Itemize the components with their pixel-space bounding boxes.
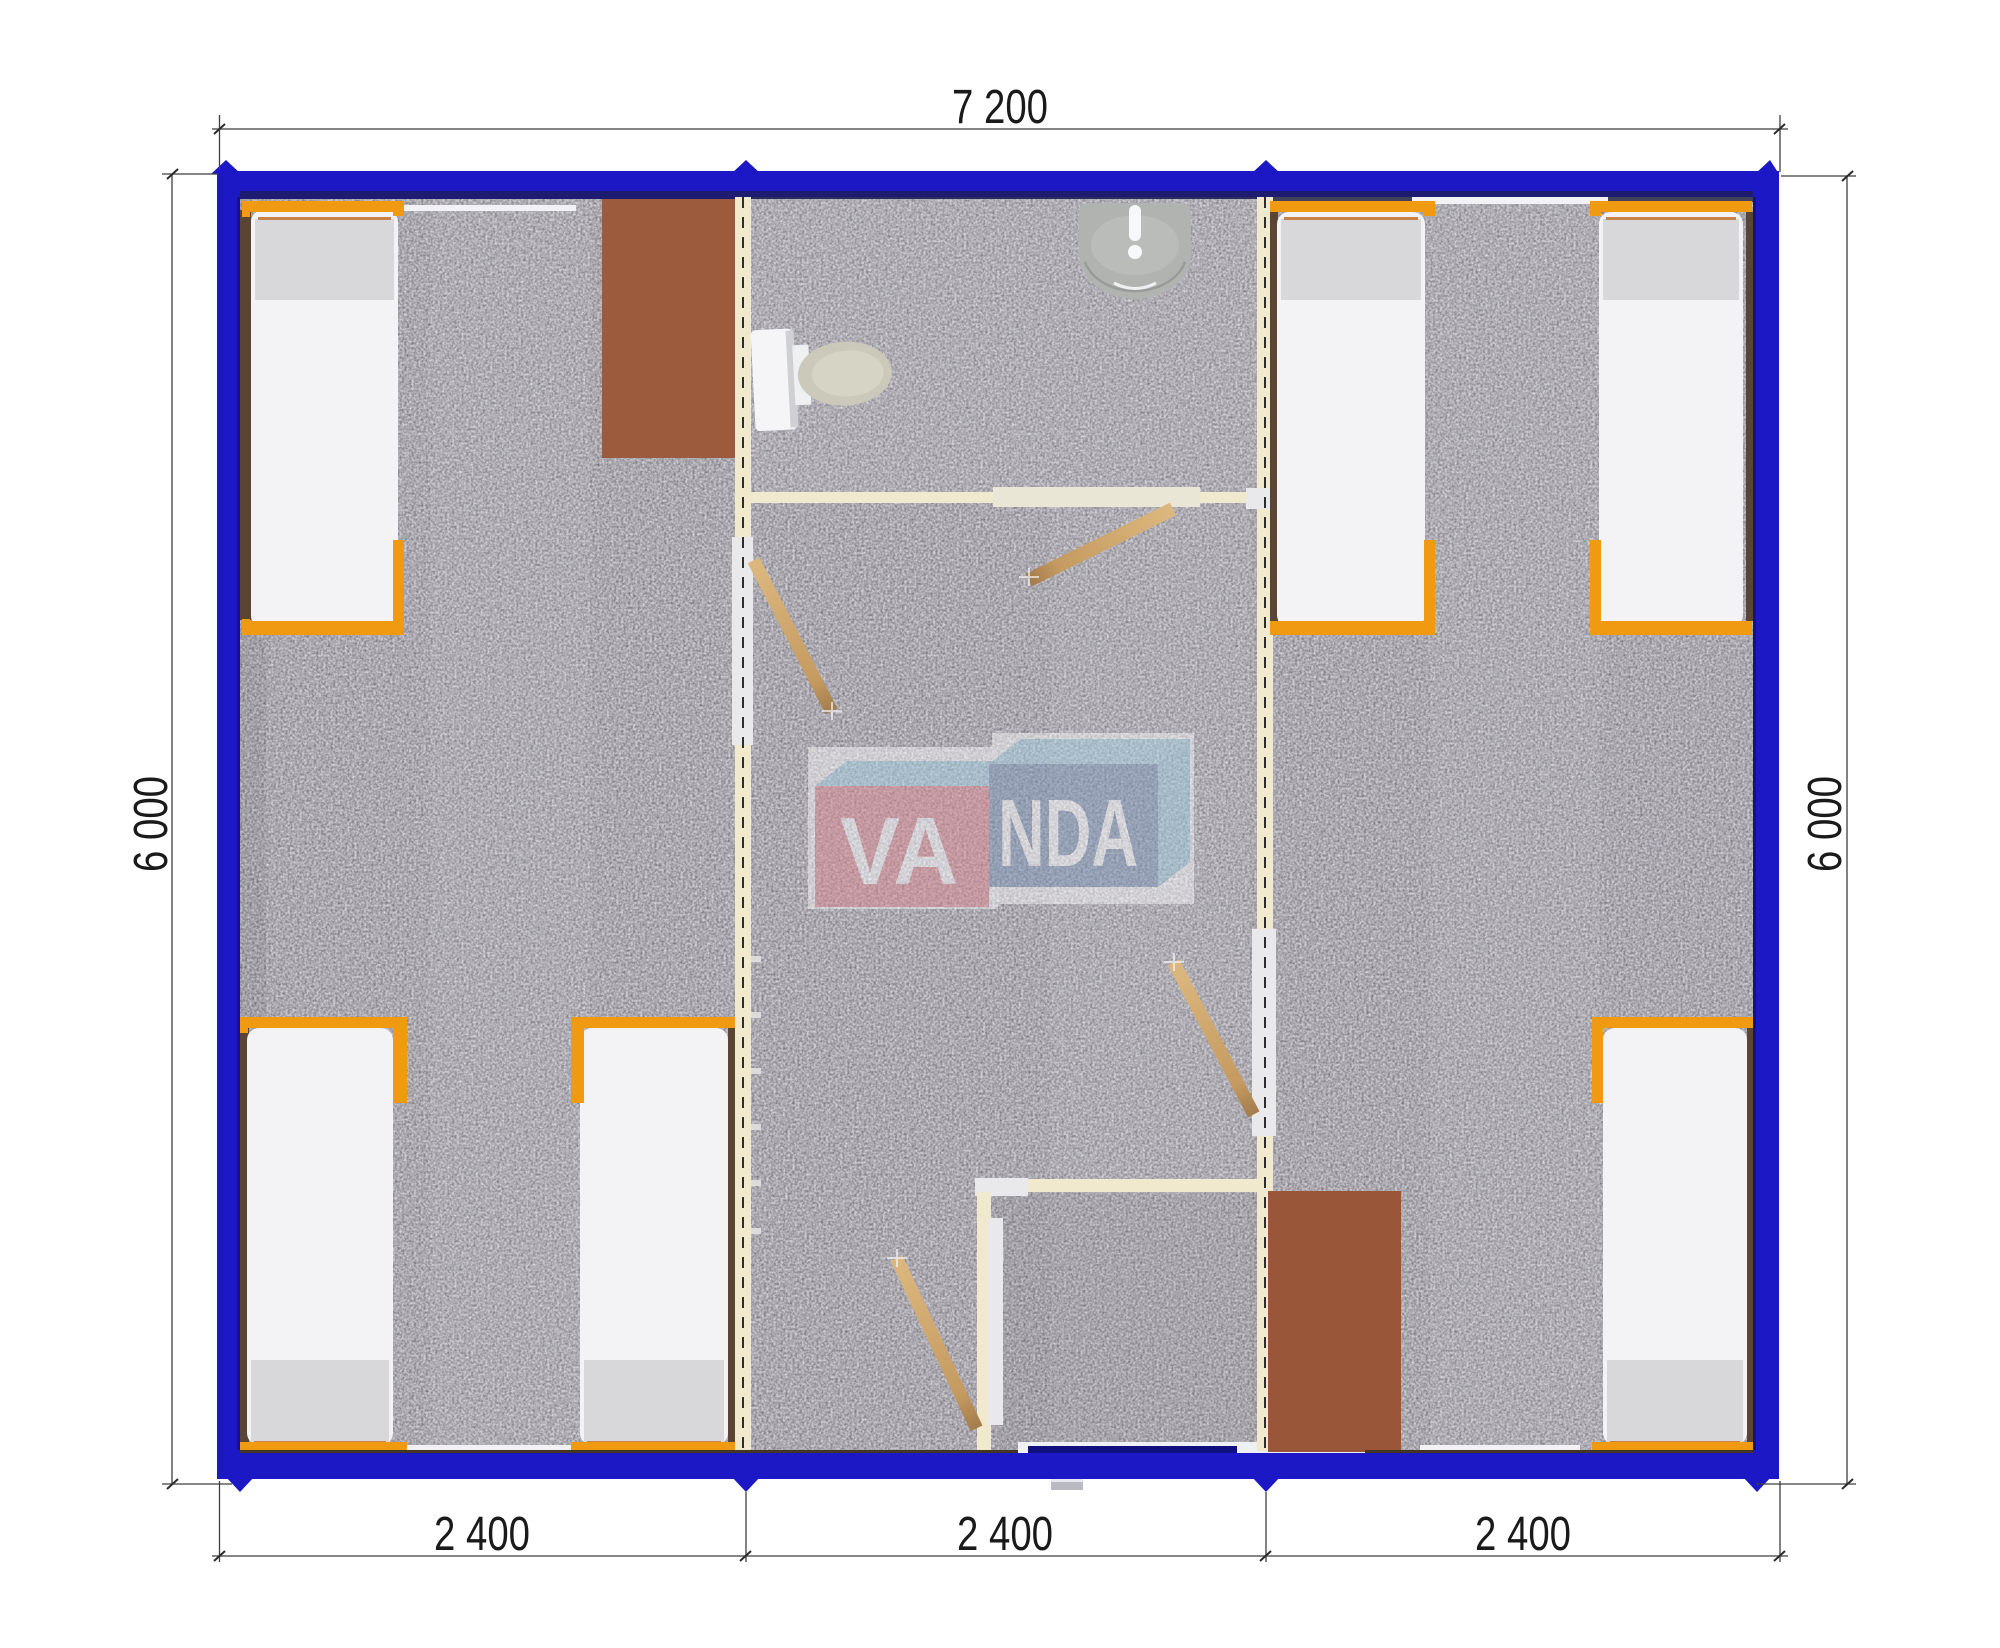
svg-text:2 400: 2 400 <box>1475 1508 1571 1561</box>
svg-text:7 200: 7 200 <box>952 81 1048 134</box>
svg-text:6 000: 6 000 <box>1799 776 1852 872</box>
svg-text:2 400: 2 400 <box>434 1508 530 1561</box>
svg-text:VA: VA <box>840 798 958 905</box>
svg-text:6 000: 6 000 <box>125 776 178 872</box>
svg-text:2 400: 2 400 <box>957 1508 1053 1561</box>
svg-text:NDA: NDA <box>998 780 1138 887</box>
